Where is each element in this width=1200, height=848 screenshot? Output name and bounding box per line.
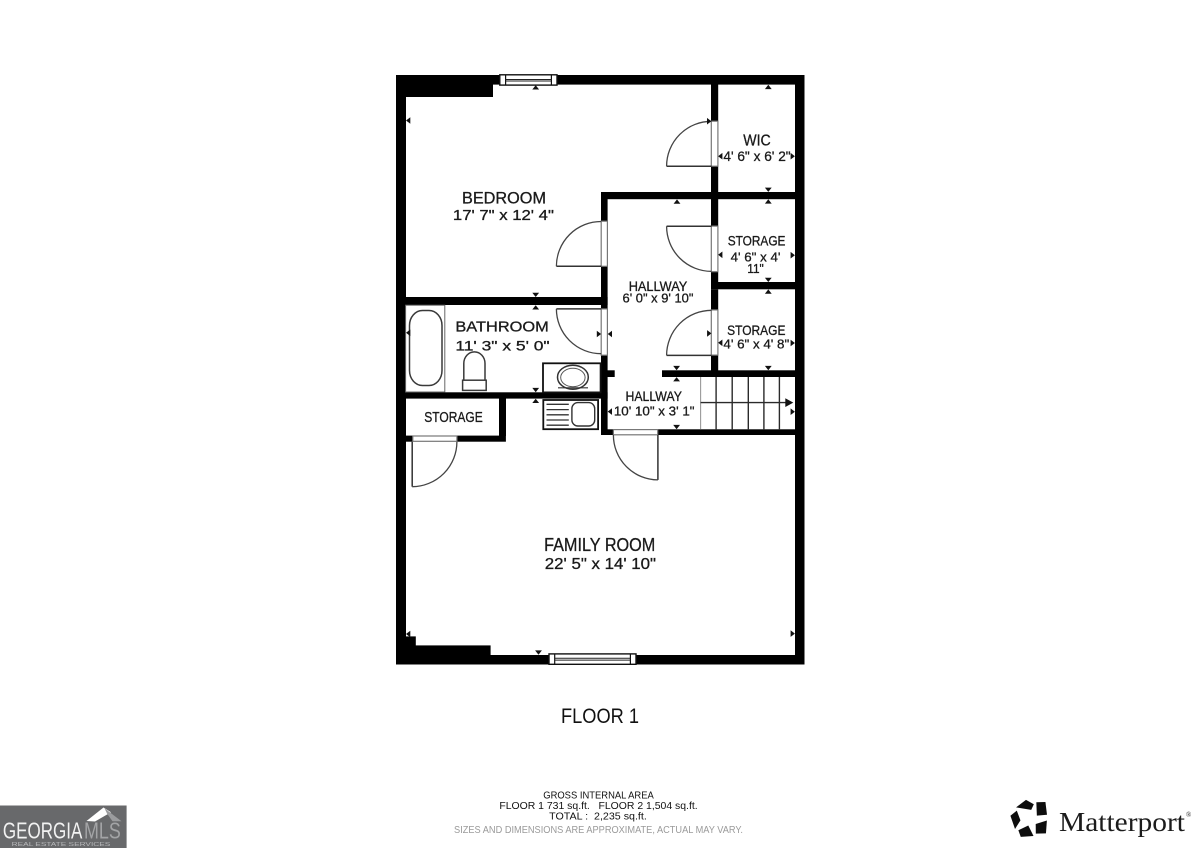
svg-text:BEDROOM: BEDROOM [462,189,546,207]
svg-text:4' 6" x 6' 2": 4' 6" x 6' 2" [723,148,790,164]
svg-text:REAL ESTATE SERVICES: REAL ESTATE SERVICES [12,842,111,848]
svg-text:SIZES AND DIMENSIONS ARE APPRO: SIZES AND DIMENSIONS ARE APPROXIMATE, AC… [454,824,743,836]
svg-text:17' 7" x 12' 4": 17' 7" x 12' 4" [453,208,554,224]
svg-text:6' 0" x 9' 10": 6' 0" x 9' 10" [623,291,694,306]
svg-text:BATHROOM: BATHROOM [455,320,548,336]
svg-text:STORAGE: STORAGE [728,234,786,249]
svg-text:FAMILY ROOM: FAMILY ROOM [544,534,655,555]
svg-text:22' 5" x 14' 10": 22' 5" x 14' 10" [545,556,656,573]
svg-text:10' 10" x 3' 1": 10' 10" x 3' 1" [614,404,695,419]
svg-text:®: ® [1186,811,1192,819]
svg-text:HALLWAY: HALLWAY [626,389,682,404]
svg-text:FLOOR 1: FLOOR 1 [561,704,639,728]
svg-text:4' 6" x 4' 8": 4' 6" x 4' 8" [723,336,789,351]
svg-text:11' 3" x 5' 0": 11' 3" x 5' 0" [455,337,549,353]
svg-text:WIC: WIC [743,132,771,149]
svg-text:11": 11" [747,261,764,276]
svg-text:TOTAL : 2,235 sq.ft.: TOTAL : 2,235 sq.ft. [549,810,647,822]
svg-text:Matterport: Matterport [1059,807,1186,837]
svg-text:STORAGE: STORAGE [424,410,483,426]
svg-text:GEORGIA: GEORGIA [3,817,83,843]
